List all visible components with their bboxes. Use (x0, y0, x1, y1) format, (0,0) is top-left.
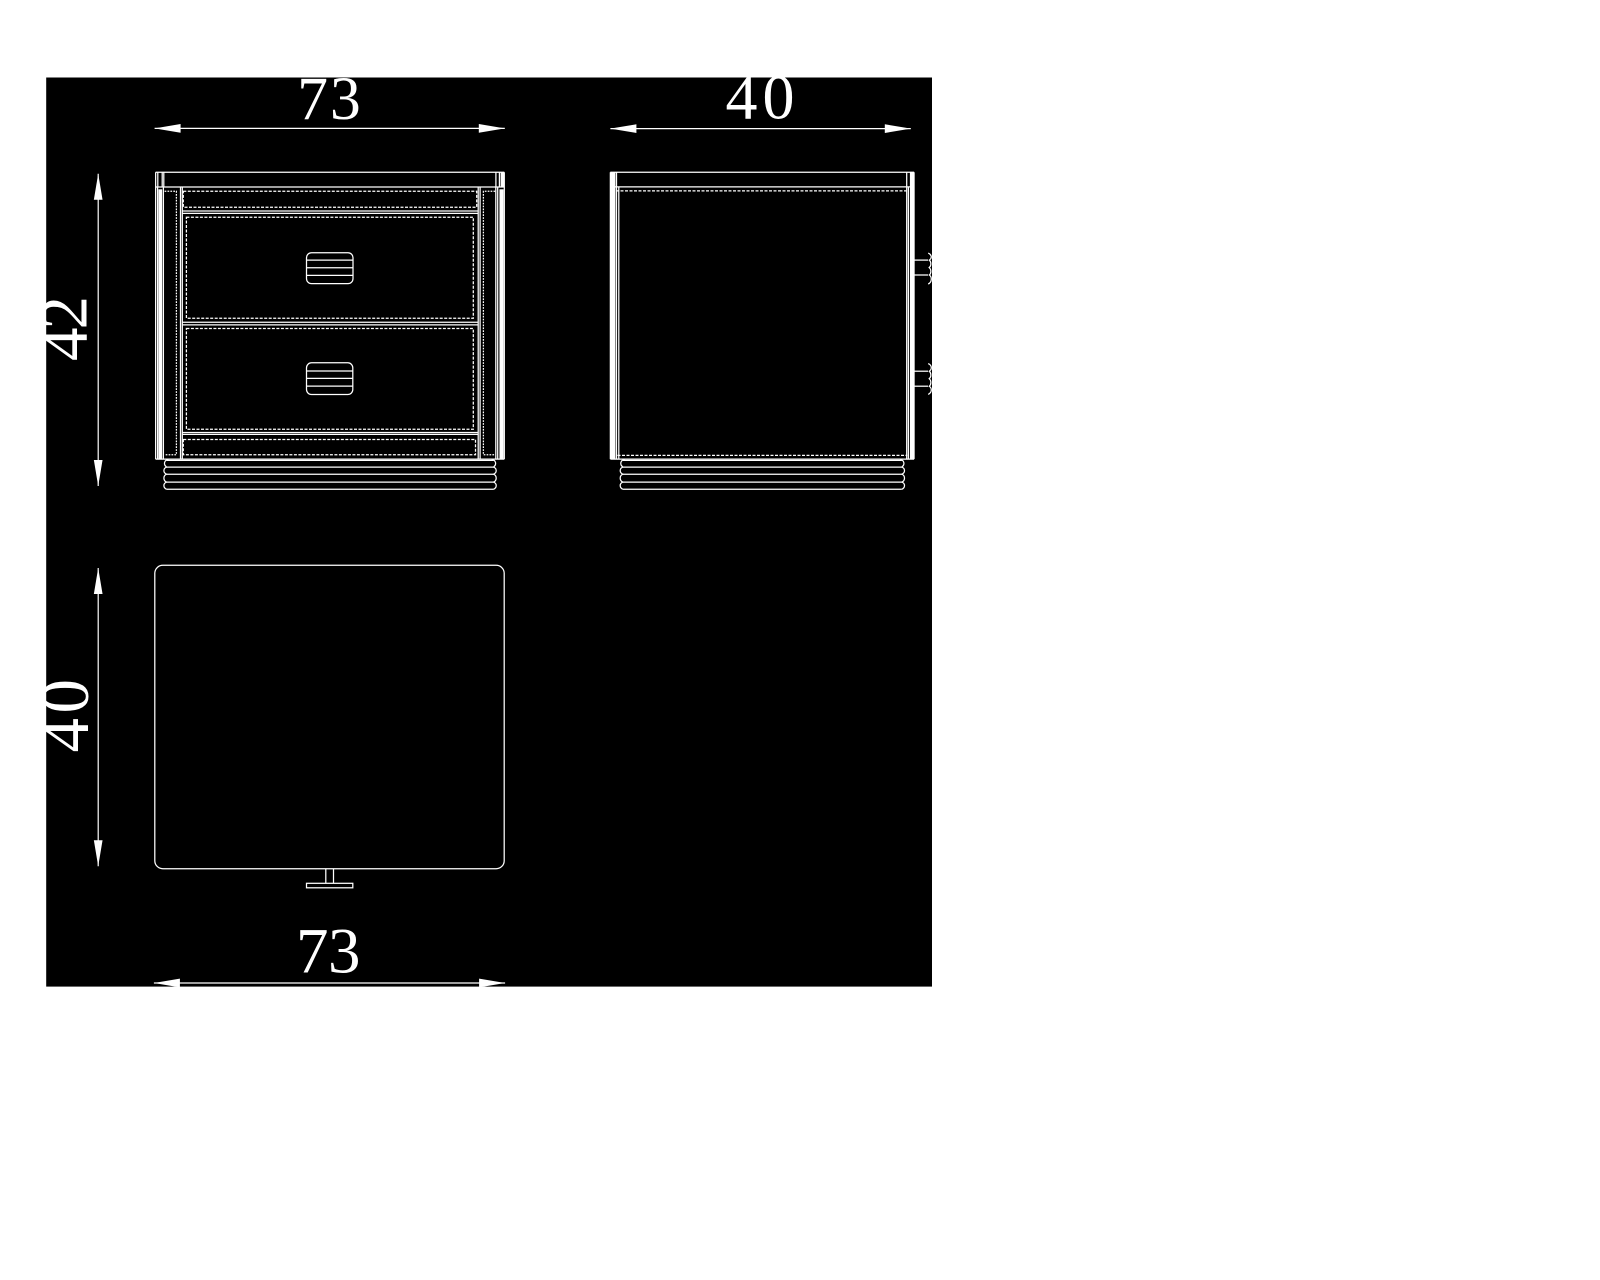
svg-text:42: 42 (27, 296, 101, 361)
svg-text:73: 73 (296, 916, 361, 988)
